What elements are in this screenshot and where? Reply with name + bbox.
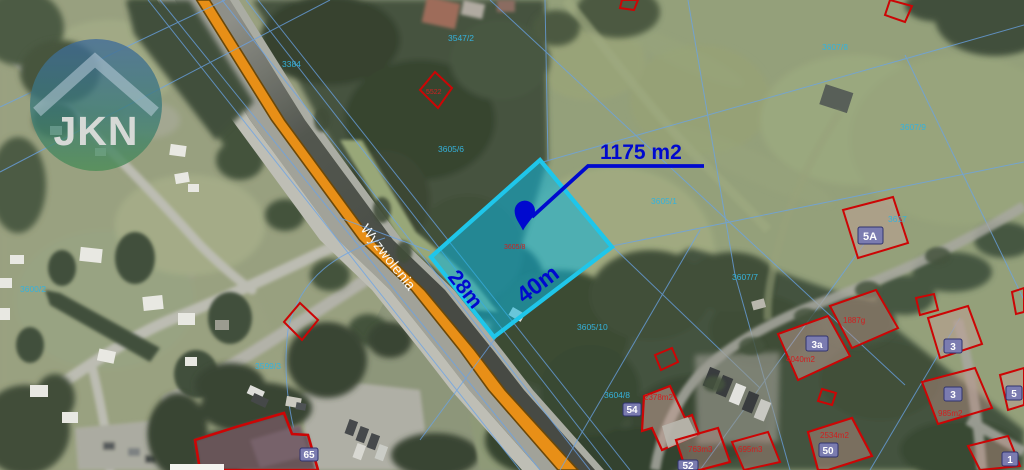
svg-text:2534m2: 2534m2: [820, 431, 849, 440]
svg-text:3384: 3384: [282, 59, 301, 69]
svg-text:3607/9: 3607/9: [900, 122, 926, 132]
svg-text:2378m2: 2378m2: [644, 393, 673, 402]
svg-text:4040m2: 4040m2: [786, 355, 815, 364]
svg-text:3617: 3617: [888, 214, 907, 224]
svg-text:3604/8: 3604/8: [604, 390, 630, 400]
svg-text:3607/8: 3607/8: [822, 42, 848, 52]
svg-text:3605/10: 3605/10: [577, 322, 608, 332]
svg-text:3: 3: [950, 342, 956, 353]
svg-text:52: 52: [682, 461, 694, 470]
svg-text:3a: 3a: [811, 340, 823, 351]
svg-text:3605/6: 3605/6: [438, 144, 464, 154]
svg-text:JKN: JKN: [53, 108, 138, 154]
svg-text:763m3: 763m3: [688, 445, 713, 454]
svg-text:3605/8: 3605/8: [504, 244, 526, 251]
svg-text:50: 50: [822, 446, 834, 457]
svg-text:1175 m2: 1175 m2: [600, 141, 682, 164]
svg-text:1887g: 1887g: [843, 316, 865, 325]
svg-text:1: 1: [1007, 455, 1013, 466]
svg-text:5522: 5522: [426, 89, 442, 96]
svg-text:695m3: 695m3: [738, 445, 763, 454]
svg-text:3547/2: 3547/2: [448, 33, 474, 43]
svg-text:5: 5: [1011, 389, 1017, 400]
svg-text:65: 65: [303, 450, 315, 461]
svg-text:3: 3: [950, 390, 956, 401]
svg-text:3607/7: 3607/7: [732, 272, 758, 282]
svg-text:985m2: 985m2: [938, 409, 963, 418]
svg-text:3605/1: 3605/1: [651, 196, 677, 206]
svg-text:3600/2: 3600/2: [20, 284, 46, 294]
svg-text:5A: 5A: [863, 231, 877, 243]
svg-text:3599/3: 3599/3: [255, 361, 281, 371]
svg-text:54: 54: [626, 405, 638, 416]
